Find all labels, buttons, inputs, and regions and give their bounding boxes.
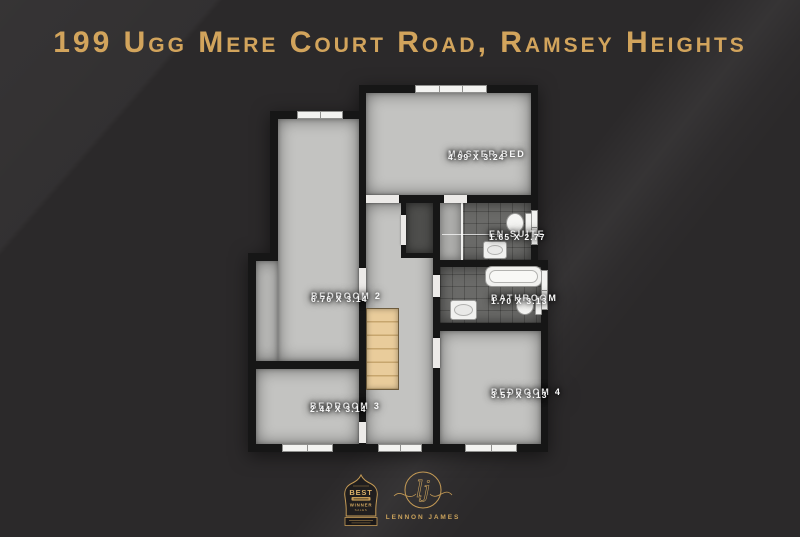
room-floor-bedroom2-extension bbox=[256, 261, 278, 361]
bathtub-icon bbox=[485, 266, 542, 287]
room-dimensions: 4.99 X 3.24 bbox=[448, 152, 505, 162]
room-floor-master bbox=[366, 93, 531, 195]
page-background: 199 Ugg Mere Court Road, Ramsey Heights bbox=[0, 0, 800, 537]
room-dimensions: 1.70 X 3.13 bbox=[491, 296, 548, 306]
room-dimensions: 6.76 X 3.14 bbox=[311, 294, 368, 304]
logo-monogram: lj bbox=[416, 478, 430, 503]
window-pane bbox=[283, 445, 308, 451]
window-pane bbox=[379, 445, 401, 451]
window-pane bbox=[532, 211, 537, 228]
badge-band-text-line bbox=[354, 498, 369, 499]
sink-icon bbox=[483, 241, 507, 259]
room-dimensions: 1.65 X 2.77 bbox=[489, 232, 546, 242]
window-pane bbox=[466, 445, 492, 451]
badge-decorative-line bbox=[353, 486, 369, 487]
window bbox=[282, 444, 333, 452]
window bbox=[415, 85, 487, 93]
sink-icon bbox=[450, 300, 477, 320]
window-pane bbox=[308, 445, 332, 451]
room-dimensions: 2.44 X 3.14 bbox=[310, 404, 367, 414]
wall bbox=[270, 111, 278, 261]
room-dimensions: 3.57 X 3.13 bbox=[491, 390, 548, 400]
staircase bbox=[366, 308, 399, 390]
shower-enclosure bbox=[440, 203, 463, 260]
window-pane bbox=[440, 86, 464, 92]
door-opening-ensuite bbox=[444, 195, 467, 203]
window-pane bbox=[463, 86, 486, 92]
award-badge: BEST WINNER SALES bbox=[339, 474, 383, 528]
window bbox=[378, 444, 422, 452]
window bbox=[465, 444, 517, 452]
badge-category: SALES bbox=[355, 508, 368, 512]
door-opening-bedroom3 bbox=[359, 422, 366, 443]
window-pane bbox=[321, 112, 343, 118]
badge-title: BEST bbox=[349, 488, 372, 497]
door-opening-bedroom4 bbox=[433, 338, 440, 368]
agency-logo: lj bbox=[392, 470, 454, 512]
sink-basin bbox=[454, 304, 473, 316]
wall bbox=[401, 253, 440, 258]
sink-basin bbox=[487, 245, 503, 255]
window-pane bbox=[401, 445, 422, 451]
agency-name: LENNON JAMES bbox=[383, 514, 463, 521]
badge-banner bbox=[345, 518, 377, 526]
wall bbox=[248, 361, 366, 369]
badge-banner-text-line bbox=[349, 520, 373, 521]
window-pane bbox=[542, 271, 547, 291]
wall bbox=[248, 253, 256, 452]
cupboard-floor bbox=[406, 203, 433, 253]
window bbox=[297, 111, 343, 119]
window-pane bbox=[416, 86, 440, 92]
window-pane bbox=[492, 445, 517, 451]
badge-banner-text-line bbox=[352, 522, 371, 523]
door-opening-cupboard bbox=[401, 215, 406, 245]
door-opening-master bbox=[366, 195, 399, 203]
page-title: 199 Ugg Mere Court Road, Ramsey Heights bbox=[0, 26, 800, 60]
badge-award: WINNER bbox=[350, 503, 373, 508]
window-pane bbox=[298, 112, 321, 118]
wall bbox=[433, 323, 548, 331]
room-floor-bedroom2 bbox=[278, 119, 359, 361]
floor-plan: MASTER BED 4.99 X 3.24 EN-SUITE 1.65 X 2… bbox=[248, 85, 552, 452]
bathtub-inner bbox=[489, 270, 538, 283]
door-opening-bathroom bbox=[433, 275, 440, 297]
